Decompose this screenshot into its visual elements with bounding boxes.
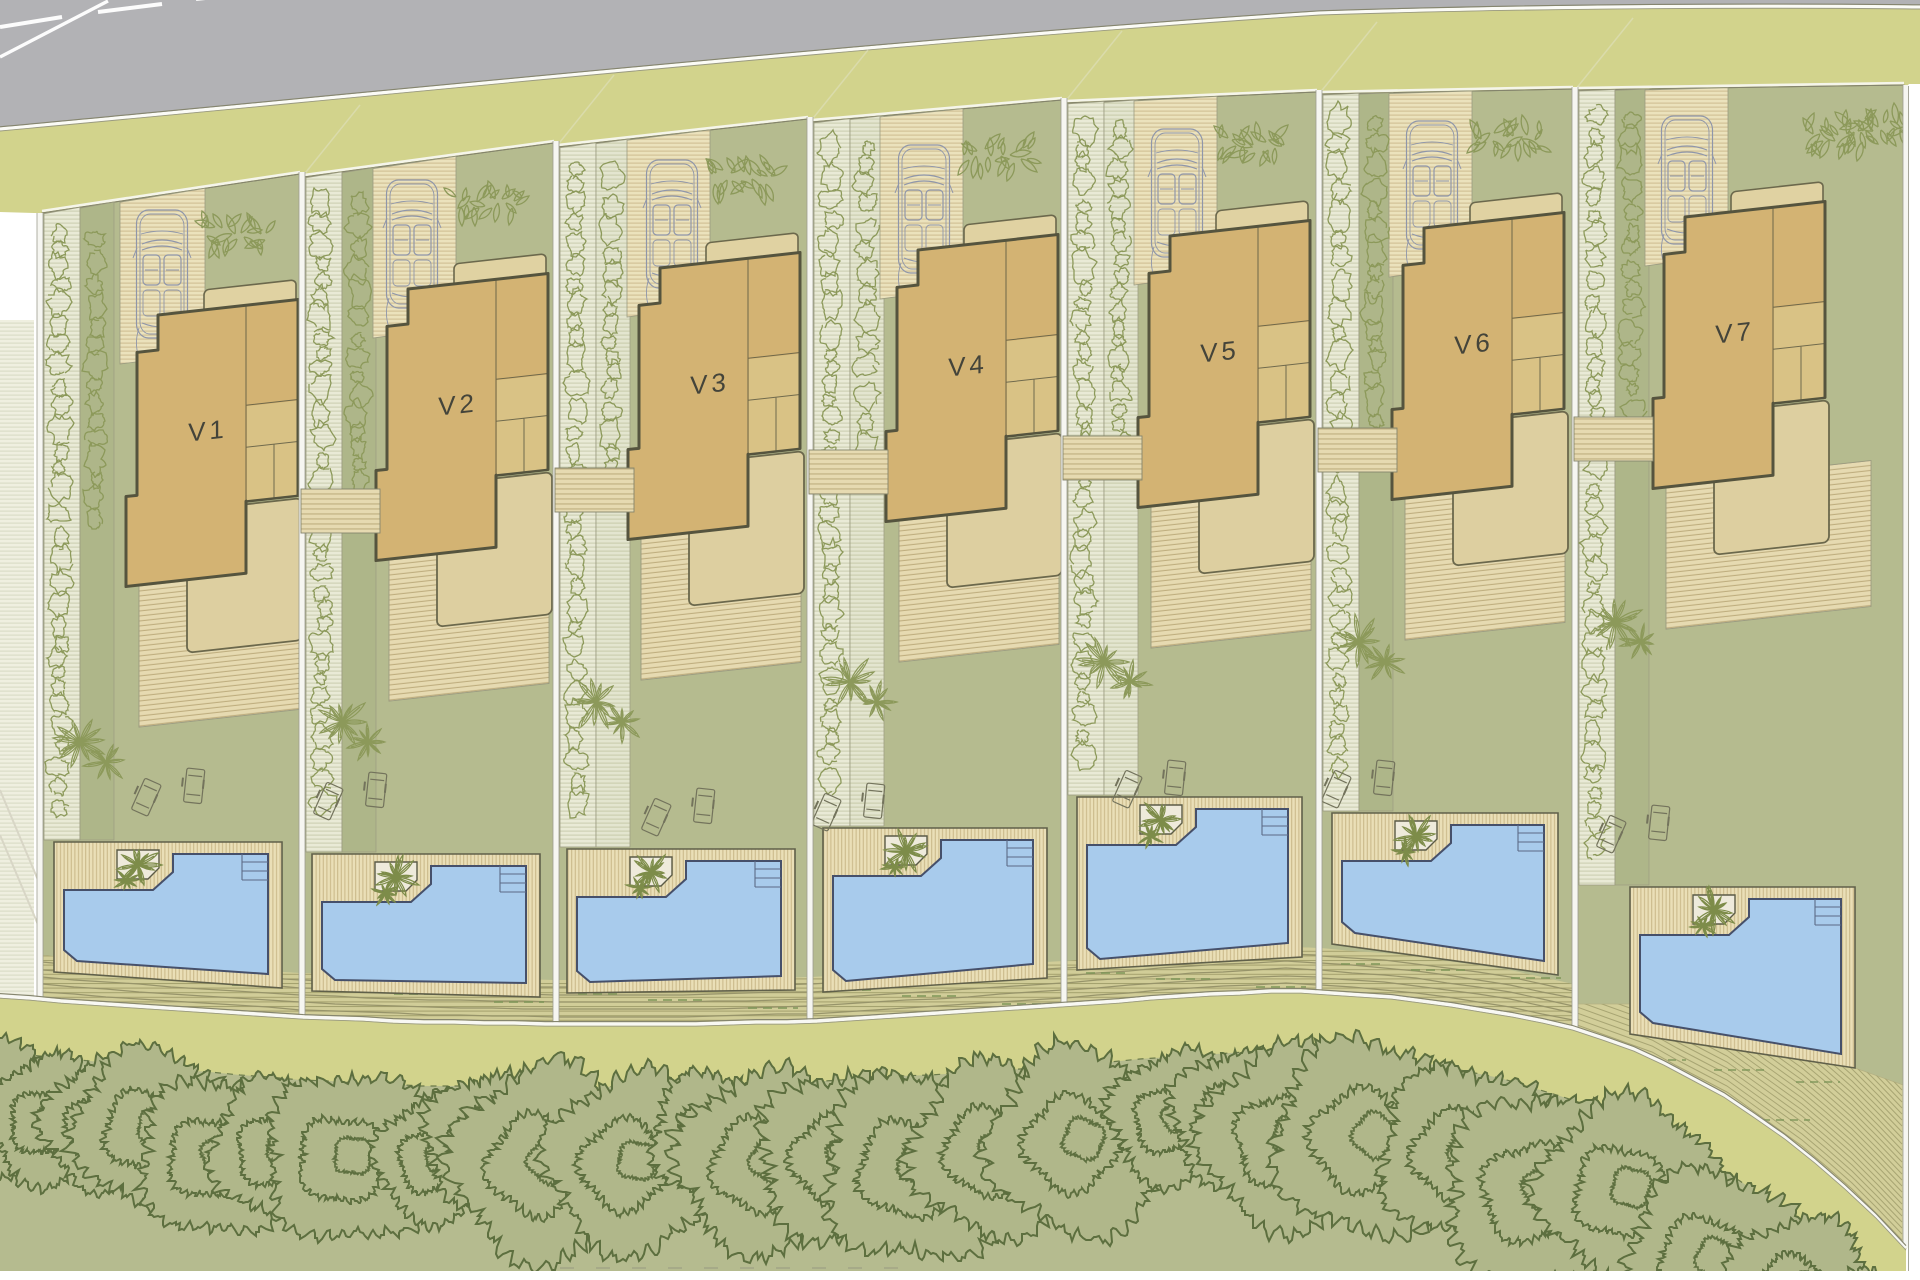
svg-text:V3: V3: [690, 366, 730, 400]
svg-text:V1: V1: [188, 413, 228, 447]
svg-text:V6: V6: [1454, 326, 1494, 360]
svg-text:V2: V2: [438, 387, 478, 421]
svg-text:V4: V4: [948, 348, 988, 382]
svg-text:V5: V5: [1200, 334, 1240, 368]
svg-text:V7: V7: [1715, 315, 1755, 349]
